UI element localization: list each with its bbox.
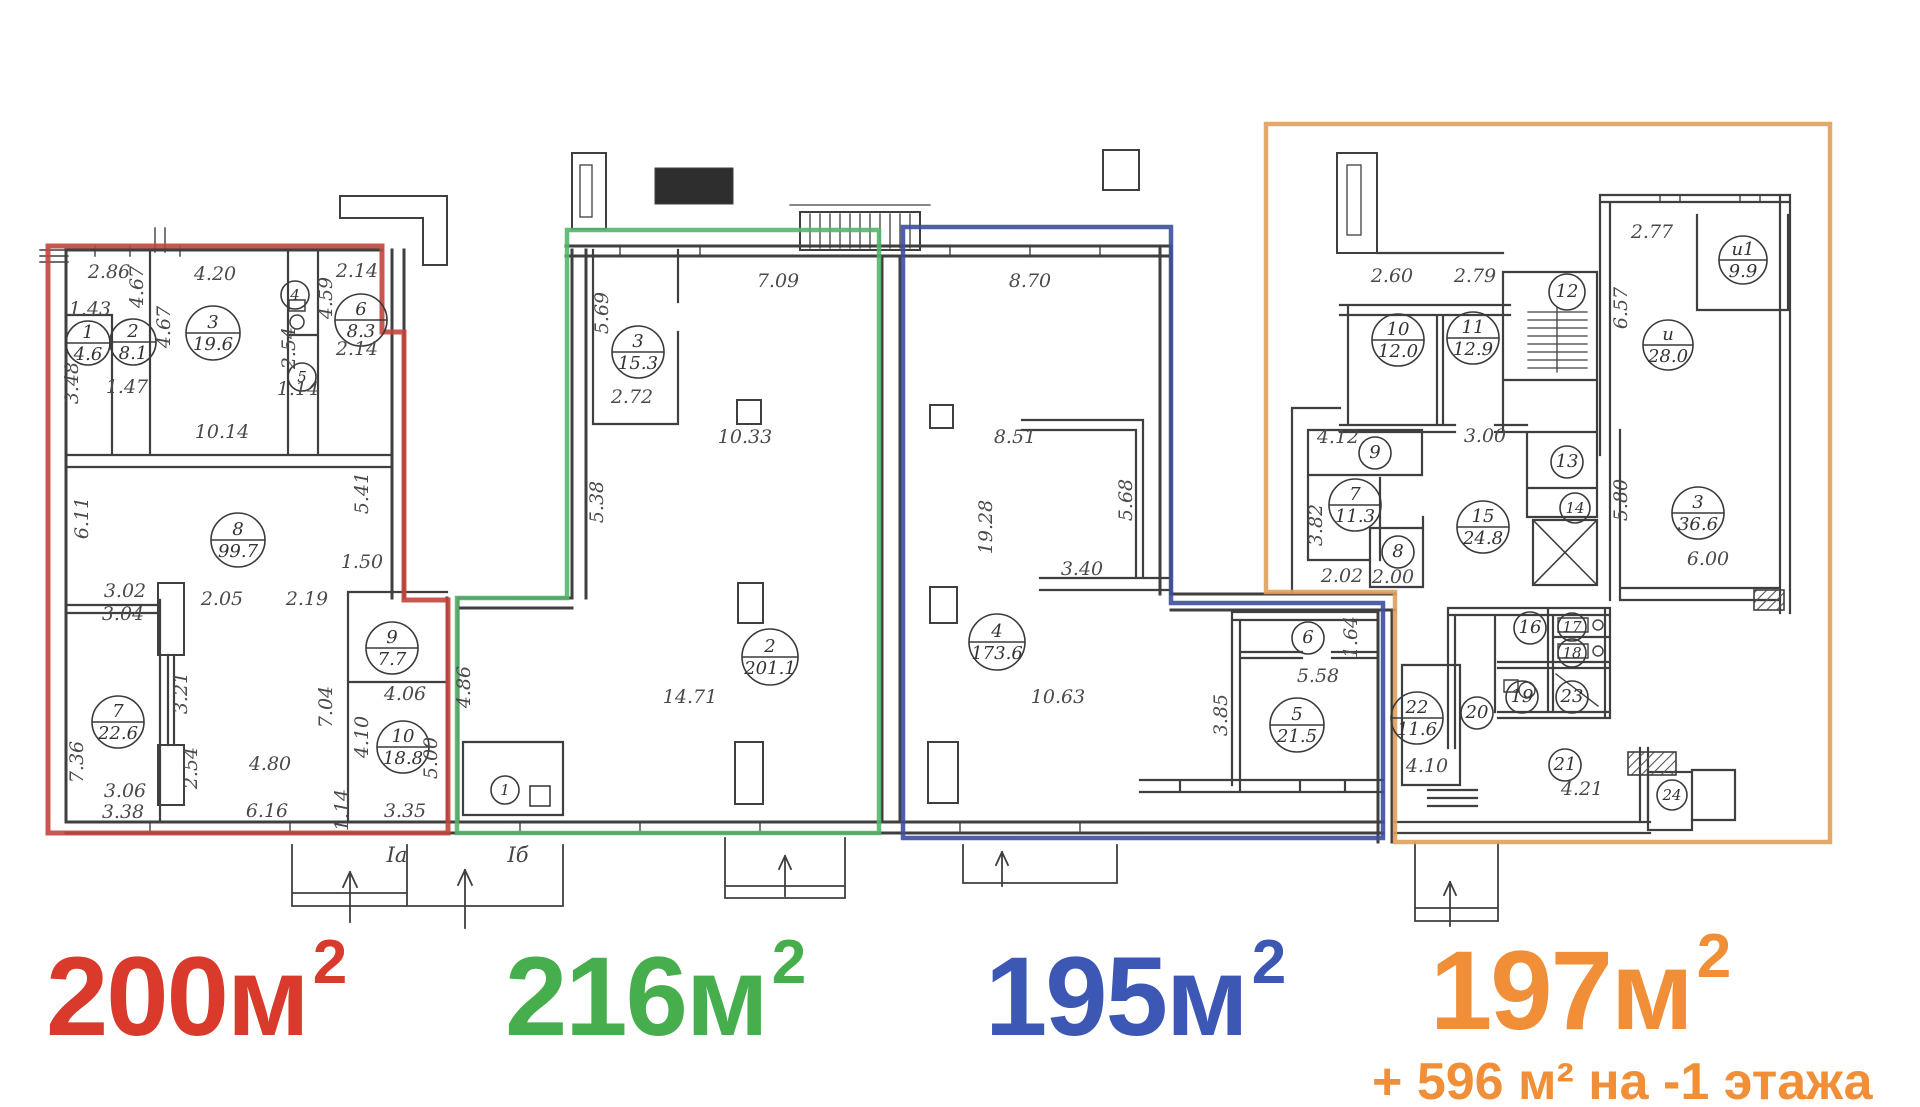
dimension-label: 10.33 [718, 426, 772, 448]
svg-text:14: 14 [1565, 499, 1584, 517]
dimension-label: 5.80 [1610, 479, 1632, 521]
svg-text:и: и [1662, 324, 1674, 345]
svg-text:7: 7 [1349, 484, 1361, 505]
area-sublabel-orange: + 596 м² на -1 этажа [1372, 1056, 1873, 1107]
svg-text:8: 8 [232, 519, 243, 540]
dimension-label: 3.35 [384, 800, 426, 822]
svg-text:11.6: 11.6 [1397, 719, 1437, 740]
entrance-label: Iа [386, 843, 408, 867]
dimension-label: 4.10 [351, 716, 373, 759]
dimension-label: 5.58 [1297, 665, 1339, 687]
area-label-green: 216м2 [505, 932, 806, 1053]
svg-text:18.8: 18.8 [383, 748, 423, 769]
room-marker: 20 [1461, 697, 1493, 729]
dimension-label: 5.38 [586, 481, 608, 523]
dimension-label: 1.43 [69, 298, 111, 320]
dimension-label: 3.00 [1464, 425, 1506, 447]
room-marker: 13 [1551, 446, 1583, 478]
svg-text:21.5: 21.5 [1276, 726, 1317, 747]
room-marker: 16 [1514, 612, 1546, 644]
svg-text:7.7: 7.7 [378, 649, 407, 670]
room-marker: 4173.6 [969, 614, 1025, 670]
svg-text:20: 20 [1465, 702, 1489, 723]
svg-text:22: 22 [1405, 697, 1429, 718]
dimension-label: 6.11 [71, 497, 93, 539]
dimension-label: 3.40 [1061, 558, 1103, 580]
dimension-label: 2.14 [335, 260, 378, 282]
svg-text:28.0: 28.0 [1647, 346, 1688, 367]
walls [40, 150, 1790, 928]
svg-text:19: 19 [1511, 686, 1534, 707]
svg-text:15.3: 15.3 [618, 353, 658, 374]
area-label-red: 200м2 [46, 932, 347, 1053]
dimension-label: 1.50 [341, 551, 383, 573]
dimension-label: 3.04 [102, 603, 144, 625]
svg-text:9: 9 [1369, 442, 1380, 463]
room-marker: 24 [1657, 780, 1687, 810]
svg-text:17: 17 [1562, 618, 1582, 636]
svg-text:10: 10 [1387, 319, 1410, 340]
svg-text:9.9: 9.9 [1729, 261, 1758, 282]
room-marker: 1012.0 [1372, 314, 1424, 366]
svg-text:3: 3 [207, 312, 218, 333]
dimension-label: 4.21 [1560, 778, 1603, 800]
dimension-label: 2.54 [180, 747, 202, 790]
dimension-label: 8.70 [1009, 270, 1051, 292]
dimension-label: 5.00 [420, 737, 442, 779]
dimension-label: 4.12 [1316, 426, 1359, 448]
dimension-label: 1.14 [277, 378, 319, 400]
dimension-label: 4.80 [248, 753, 291, 775]
dimension-label: 1.64 [1340, 616, 1362, 658]
dimension-label: 2.60 [1370, 265, 1413, 287]
entrance-label: Iб [506, 843, 528, 867]
dimension-label: 2.54 [278, 327, 300, 370]
svg-text:24: 24 [1661, 786, 1681, 804]
dimension-label: 3.06 [104, 780, 146, 802]
dimension-label: 3.21 [170, 672, 192, 714]
dimension-label: 5.69 [591, 292, 613, 334]
dimension-label: 3.48 [61, 362, 83, 404]
room-marker: 8 [1382, 536, 1414, 568]
svg-text:173.6: 173.6 [971, 643, 1023, 664]
room-marker: 1112.9 [1447, 312, 1499, 364]
dimension-label: 5.41 [351, 472, 373, 514]
dimension-label: 2.86 [87, 261, 130, 283]
dimension-label: 4.20 [193, 263, 236, 285]
dimension-label: 3.02 [104, 580, 146, 602]
dimension-label: 8.51 [994, 426, 1036, 448]
area-label-orange: 197м2 [1430, 926, 1731, 1047]
svg-text:и1: и1 [1731, 239, 1754, 260]
svg-text:21: 21 [1553, 754, 1577, 775]
room-marker: 28.1 [110, 319, 156, 365]
svg-text:12: 12 [1556, 281, 1579, 302]
dimension-label: 3.82 [1305, 504, 1327, 546]
svg-text:7: 7 [112, 701, 124, 722]
dimension-label: 2.02 [1320, 565, 1363, 587]
dimension-label: 4.10 [1405, 755, 1448, 777]
dimension-label: 6.16 [246, 800, 288, 822]
room-marker: 899.7 [211, 513, 265, 567]
dimension-label: 4.67 [126, 265, 148, 309]
svg-text:1: 1 [500, 781, 510, 799]
room-marker: 1524.8 [1457, 501, 1509, 553]
svg-text:201.1: 201.1 [743, 658, 796, 679]
dimension-label: 4.67 [153, 305, 175, 349]
dimension-label: 7.09 [757, 270, 799, 292]
dimension-label: 1.47 [106, 376, 149, 398]
room-marker: 4 [281, 281, 309, 309]
svg-text:2: 2 [763, 636, 775, 657]
area-label-blue: 195м2 [985, 932, 1286, 1053]
room-marker: 23 [1556, 681, 1588, 713]
dimension-label: 7.04 [315, 686, 337, 728]
room-marker: и28.0 [1643, 320, 1693, 370]
room-marker: 14.6 [66, 321, 110, 365]
room-marker: 2211.6 [1391, 692, 1443, 744]
room-marker: 711.3 [1329, 479, 1381, 531]
svg-text:8: 8 [1392, 541, 1403, 562]
dimension-label: 2.00 [1371, 566, 1414, 588]
svg-text:23: 23 [1560, 686, 1584, 707]
dimension-label: 3.85 [1210, 694, 1232, 736]
room-marker: и19.9 [1719, 236, 1767, 284]
svg-text:36.6: 36.6 [1678, 514, 1718, 535]
svg-text:15: 15 [1472, 506, 1495, 527]
svg-text:4: 4 [289, 286, 300, 304]
dimension-label: 6.00 [1687, 548, 1729, 570]
svg-text:16: 16 [1519, 617, 1542, 638]
svg-text:1: 1 [82, 322, 93, 343]
dimension-label: 2.72 [610, 386, 653, 408]
room-marker: 6 [1292, 622, 1324, 654]
dimension-label: 10.14 [195, 421, 249, 443]
floor-plan-page: 14.628.1319.64568.3722.6899.797.71018.83… [0, 0, 1920, 1107]
svg-text:5: 5 [1291, 704, 1302, 725]
svg-text:11.3: 11.3 [1335, 506, 1375, 527]
room-marker: 9 [1359, 437, 1391, 469]
room-marker: 19 [1506, 681, 1538, 713]
svg-text:3: 3 [1692, 492, 1703, 513]
svg-text:19.6: 19.6 [193, 334, 233, 355]
room-marker: 319.6 [186, 306, 240, 360]
svg-text:10: 10 [392, 726, 415, 747]
dimension-label: 4.86 [453, 666, 475, 709]
dimension-label: 14.71 [663, 686, 717, 708]
dimension-label: 4.06 [383, 683, 426, 705]
svg-text:12.0: 12.0 [1378, 341, 1418, 362]
room-marker: 2201.1 [742, 629, 798, 685]
dimension-label: 1.14 [331, 789, 353, 831]
svg-text:12.9: 12.9 [1453, 339, 1493, 360]
dimension-label: 7.36 [66, 741, 88, 783]
svg-text:22.6: 22.6 [97, 723, 138, 744]
svg-text:4: 4 [990, 621, 1002, 642]
dimension-label: 2.77 [1630, 221, 1674, 243]
room-marker: 1 [491, 776, 519, 804]
svg-text:6: 6 [355, 299, 366, 320]
room-marker: 12 [1549, 274, 1585, 310]
dimension-label: 4.59 [315, 277, 337, 320]
room-marker: 14 [1560, 493, 1590, 523]
dimension-label: 2.19 [285, 588, 328, 610]
dimension-label: 10.63 [1031, 686, 1085, 708]
dimension-label: 5.68 [1115, 479, 1137, 521]
section-outline-orange [1266, 124, 1830, 842]
svg-text:2: 2 [126, 321, 138, 342]
dimension-label: 2.05 [200, 588, 243, 610]
svg-text:6: 6 [1302, 627, 1313, 648]
svg-text:3: 3 [632, 331, 643, 352]
svg-text:18: 18 [1562, 644, 1581, 662]
room-marker: 315.3 [612, 326, 664, 378]
dimension-label: 6.57 [1610, 286, 1632, 329]
dimension-label: 2.79 [1453, 265, 1496, 287]
svg-text:24.8: 24.8 [1462, 528, 1503, 549]
room-marker: 336.6 [1672, 487, 1724, 539]
svg-text:11: 11 [1462, 317, 1485, 338]
svg-text:9: 9 [386, 627, 397, 648]
dimension-label: 2.14 [335, 338, 378, 360]
dimension-label: 19.28 [975, 500, 997, 554]
svg-text:8.1: 8.1 [119, 343, 148, 364]
dimension-label: 3.38 [102, 801, 144, 823]
room-marker: 521.5 [1270, 698, 1324, 752]
room-marker: 722.6 [92, 696, 144, 748]
room-marker: 21 [1549, 749, 1581, 781]
svg-text:99.7: 99.7 [218, 541, 259, 562]
room-marker: 97.7 [366, 622, 418, 674]
svg-text:13: 13 [1556, 451, 1579, 472]
